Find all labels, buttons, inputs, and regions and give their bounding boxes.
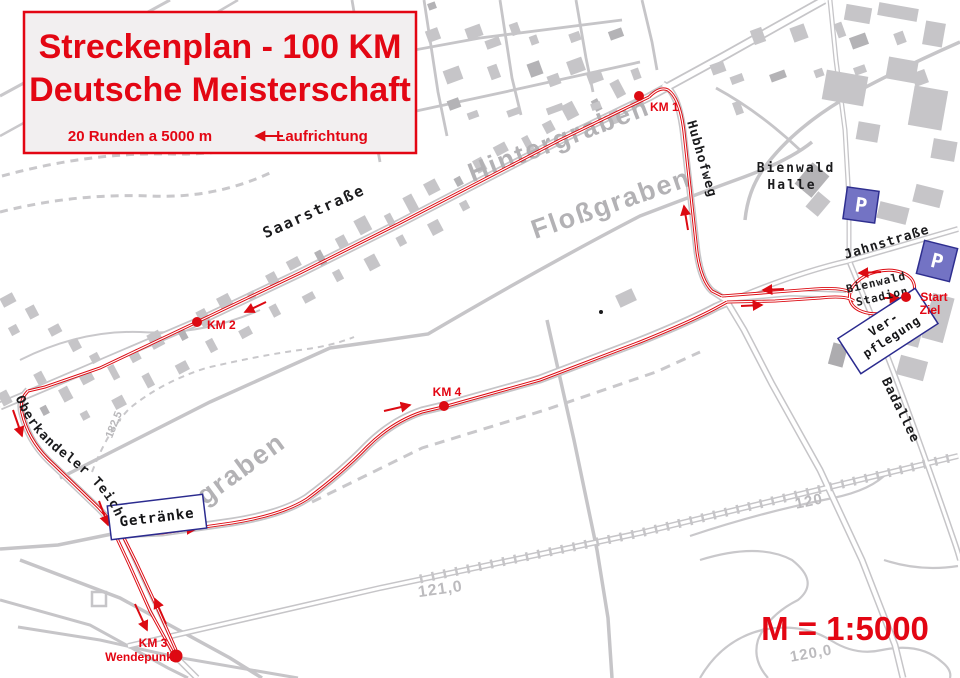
building — [268, 303, 281, 317]
km2-label: KM 2 — [207, 318, 236, 332]
street-label-oberkandeler-teich: Oberkandeler Teich — [12, 393, 127, 519]
building — [566, 57, 586, 76]
building — [853, 64, 867, 76]
getraenke-station: Getränke — [107, 494, 206, 539]
start-finish-dot — [901, 292, 911, 302]
building — [467, 110, 480, 120]
km1-label: KM 1 — [650, 100, 679, 114]
building — [332, 269, 344, 282]
building — [302, 291, 316, 304]
building — [529, 34, 540, 45]
km4-label: KM 4 — [433, 385, 462, 399]
building — [447, 97, 462, 111]
building — [912, 184, 944, 208]
building — [896, 355, 928, 382]
start-label: Start — [920, 290, 947, 304]
place-label-bienwald-halle-line2: Halle — [767, 178, 816, 193]
building — [111, 395, 127, 410]
ziel-label: Ziel — [920, 303, 941, 317]
building — [48, 323, 63, 337]
building — [487, 64, 501, 81]
km4-dot — [439, 401, 449, 411]
building — [876, 201, 909, 225]
legend-direction-label: Laufrichtung — [276, 128, 368, 145]
legend-laps-note: 20 Runden a 5000 m — [68, 128, 212, 145]
building — [395, 234, 407, 247]
building — [568, 31, 581, 43]
direction-arrow — [741, 305, 762, 306]
building — [856, 121, 881, 143]
building — [205, 338, 218, 353]
building — [453, 176, 463, 187]
building — [141, 372, 155, 388]
building — [39, 405, 49, 416]
building — [893, 31, 907, 46]
building — [813, 68, 824, 79]
building — [546, 103, 564, 115]
building — [615, 288, 637, 307]
building — [8, 324, 20, 336]
building — [423, 178, 441, 196]
building — [427, 219, 444, 236]
km3-label: KM 3 — [139, 636, 168, 650]
direction-arrow — [763, 289, 784, 290]
building — [58, 386, 73, 403]
direction-arrow — [384, 405, 410, 411]
building — [885, 57, 918, 84]
building — [353, 215, 372, 235]
building — [427, 1, 437, 10]
map-canvas: Hintergraben Floßgraben iggraben — [0, 0, 960, 678]
building — [609, 79, 626, 99]
km2-dot — [192, 317, 202, 327]
building — [877, 2, 919, 22]
building — [822, 70, 869, 107]
building — [364, 253, 381, 271]
building — [459, 200, 470, 212]
km1-dot — [634, 91, 644, 101]
legend-box: Streckenplan - 100 KM Deutsche Meistersc… — [24, 12, 416, 153]
building — [25, 304, 39, 319]
building — [80, 410, 91, 421]
legend-title-line1: Streckenplan - 100 KM — [39, 28, 402, 66]
map-scale-label: M = 1:5000 — [761, 610, 929, 647]
direction-arrow — [859, 272, 881, 273]
street-label-saarstrasse: Saarstraße — [260, 181, 368, 242]
building — [789, 23, 808, 42]
km3-sub-label: Wendepunkt — [105, 650, 177, 664]
building — [844, 4, 872, 24]
legend-title-line2: Deutsche Meisterschaft — [29, 71, 411, 109]
building — [908, 85, 948, 130]
building — [849, 32, 869, 49]
building — [769, 70, 787, 83]
building — [526, 60, 543, 78]
contour-label-182-5: 182,5 — [103, 410, 124, 440]
building — [630, 67, 641, 80]
building — [546, 73, 561, 87]
direction-arrow — [684, 206, 688, 230]
direction-arrows — [13, 206, 899, 630]
building-outline — [92, 592, 106, 606]
building — [608, 27, 624, 40]
place-label-bienwald-halle-line1: Bienwald — [757, 161, 836, 176]
survey-point-dot — [599, 310, 603, 314]
course-map: Hintergraben Floßgraben iggraben — [0, 0, 960, 678]
building — [0, 292, 17, 307]
building — [730, 73, 745, 85]
parking-sign: P — [843, 187, 879, 223]
building — [506, 106, 522, 117]
building — [175, 360, 190, 374]
building — [238, 326, 253, 340]
building — [930, 138, 957, 162]
building — [107, 364, 120, 381]
building — [922, 20, 946, 47]
parking-sign: P — [916, 240, 957, 281]
building — [443, 66, 464, 85]
direction-arrow — [245, 302, 266, 312]
